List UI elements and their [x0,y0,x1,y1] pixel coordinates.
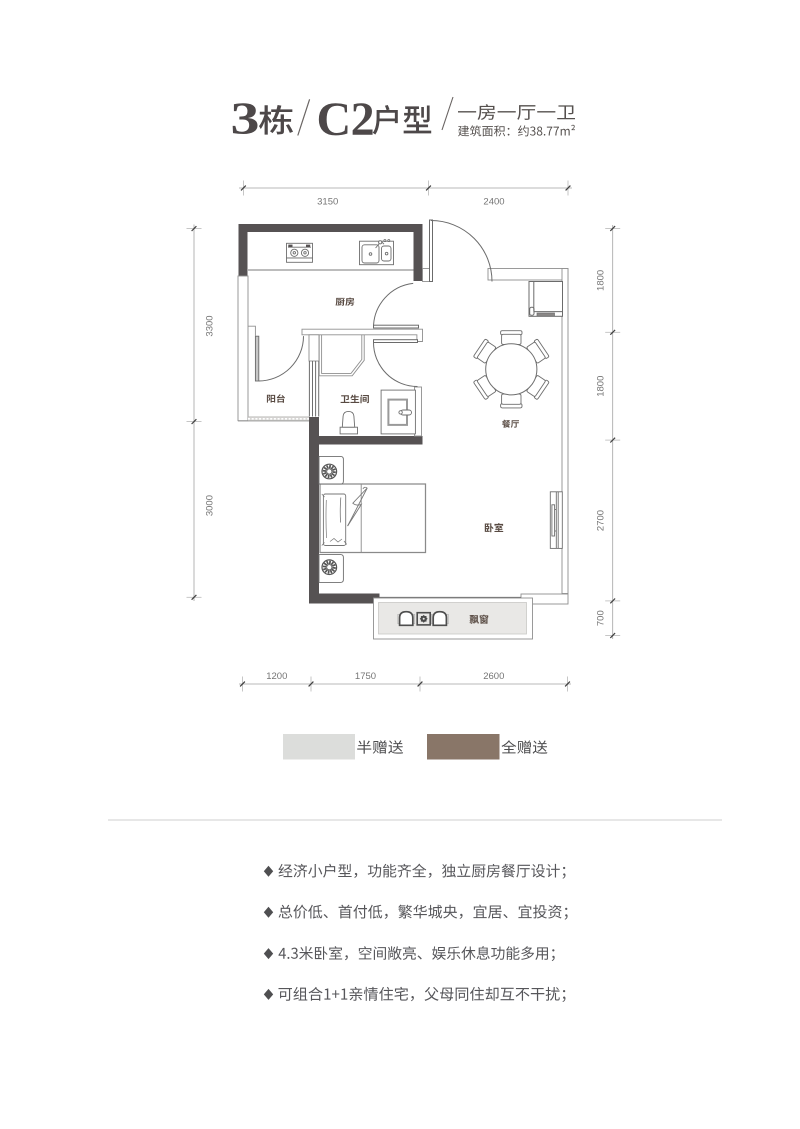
svg-text:3300: 3300 [205,315,216,336]
svg-text:1800: 1800 [595,376,606,397]
svg-text:2600: 2600 [483,671,504,682]
svg-text:3150: 3150 [317,197,338,208]
svg-text:3: 3 [231,93,260,144]
svg-text:2400: 2400 [483,197,504,208]
svg-text:3000: 3000 [205,495,216,516]
svg-text:1800: 1800 [595,270,606,291]
svg-text:700: 700 [595,610,606,626]
svg-text:2700: 2700 [595,510,606,531]
svg-text:1200: 1200 [266,671,287,682]
svg-text:1750: 1750 [355,671,376,682]
svg-text:C2: C2 [317,93,375,146]
